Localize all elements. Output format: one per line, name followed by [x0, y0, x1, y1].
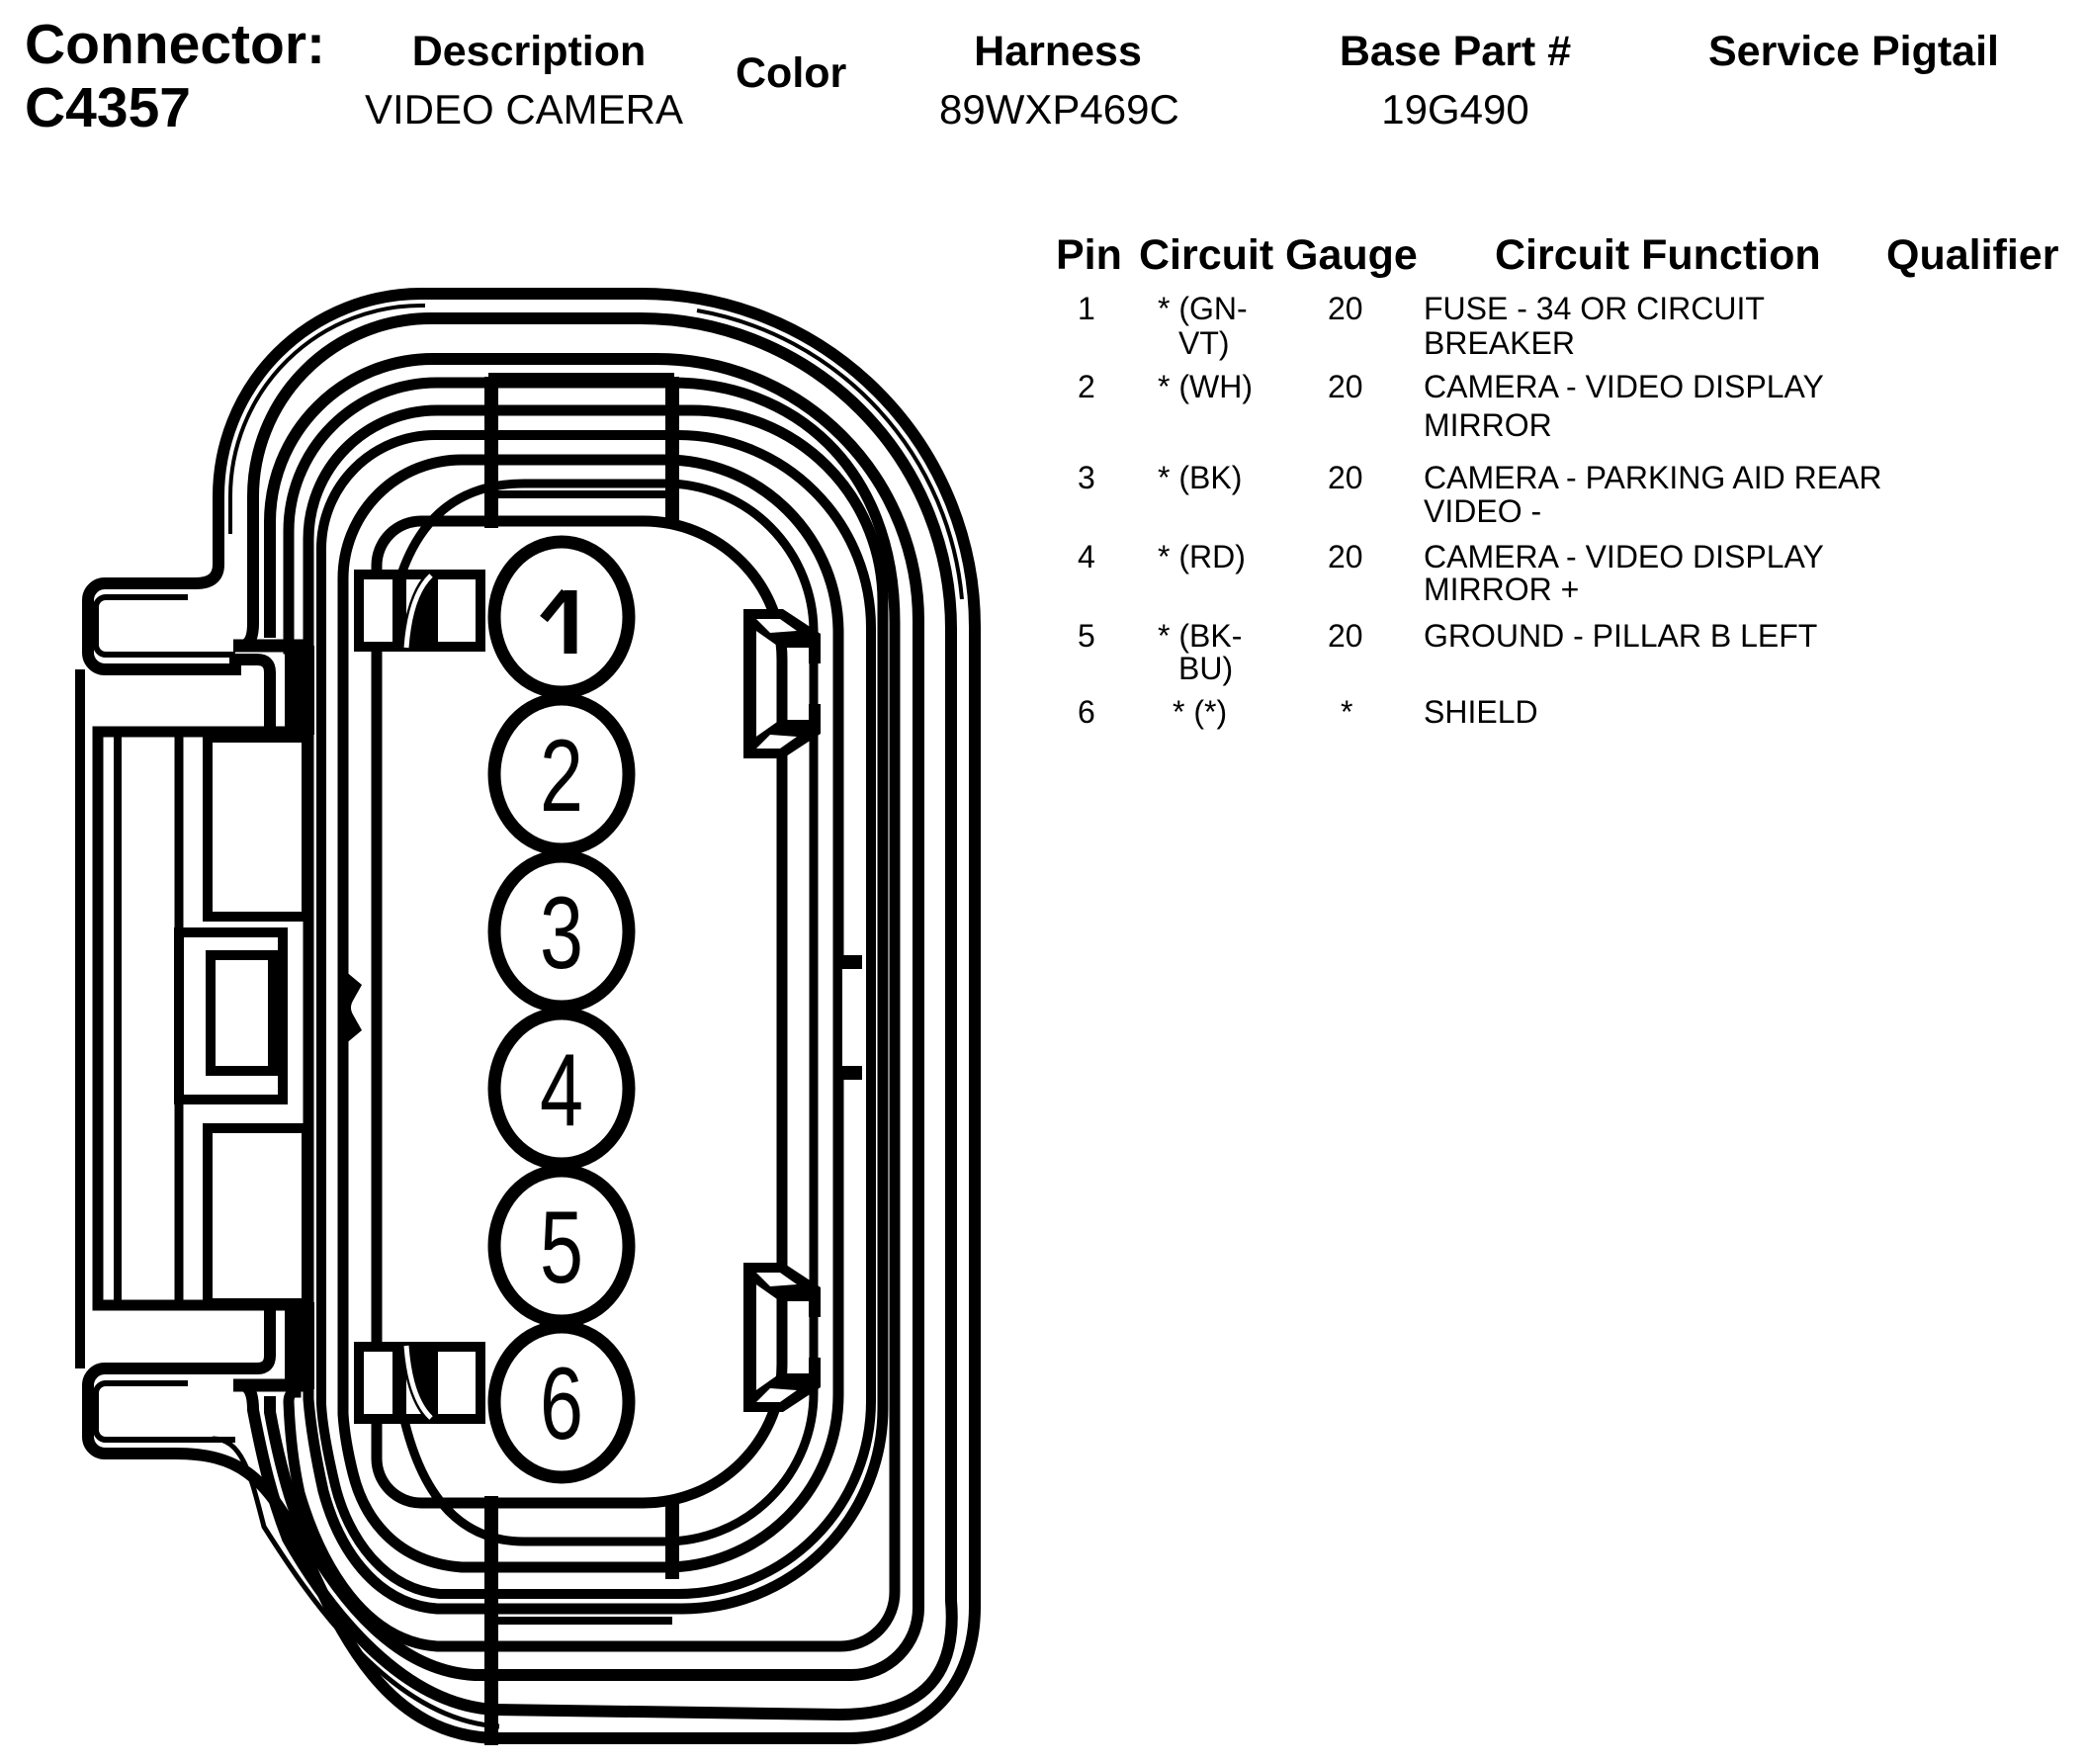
- svg-text:6: 6: [540, 1345, 583, 1460]
- svg-text:2: 2: [540, 717, 583, 833]
- svg-text:3: 3: [540, 874, 583, 990]
- svg-text:5: 5: [540, 1189, 583, 1304]
- svg-text:4: 4: [540, 1031, 583, 1147]
